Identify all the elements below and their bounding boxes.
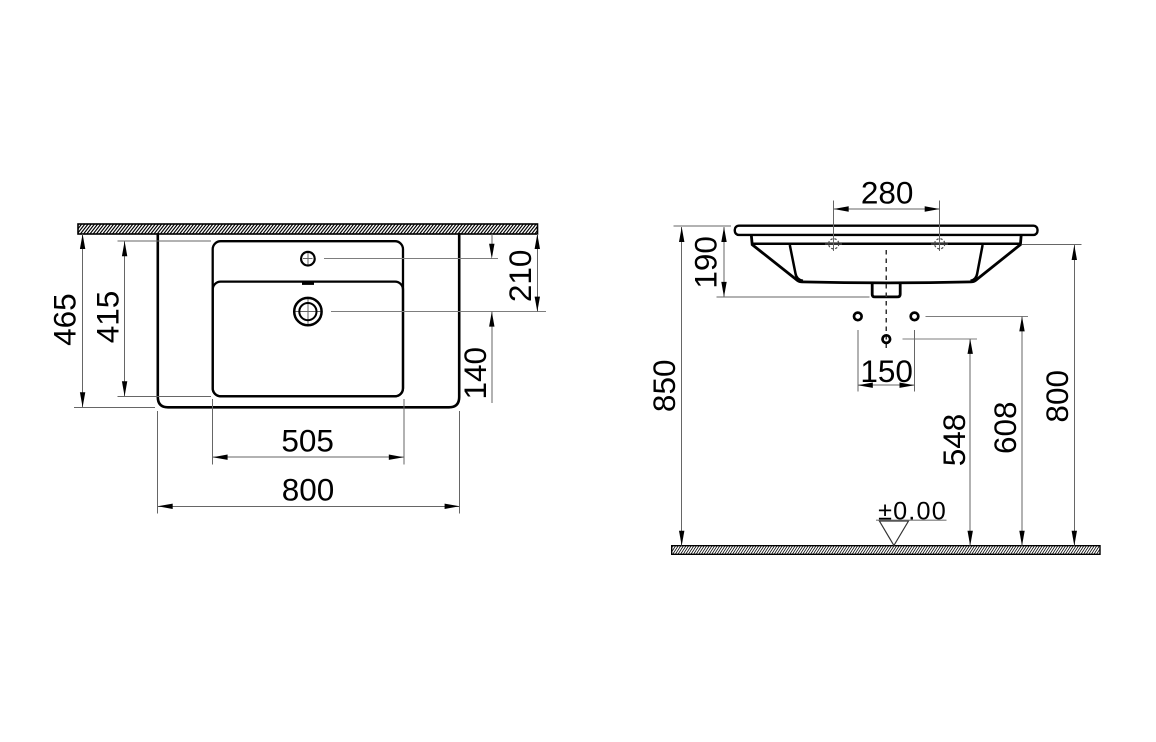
svg-text:465: 465 (47, 293, 83, 346)
svg-text:800: 800 (282, 472, 335, 508)
svg-text:150: 150 (860, 353, 913, 389)
svg-text:850: 850 (646, 360, 682, 413)
svg-text:415: 415 (90, 291, 126, 344)
svg-text:280: 280 (861, 175, 914, 211)
svg-text:608: 608 (987, 401, 1023, 454)
svg-text:210: 210 (502, 250, 538, 303)
svg-text:800: 800 (1039, 370, 1075, 423)
svg-text:190: 190 (687, 236, 723, 289)
svg-text:140: 140 (457, 347, 493, 400)
svg-text:505: 505 (281, 422, 334, 458)
svg-text:548: 548 (936, 414, 972, 467)
